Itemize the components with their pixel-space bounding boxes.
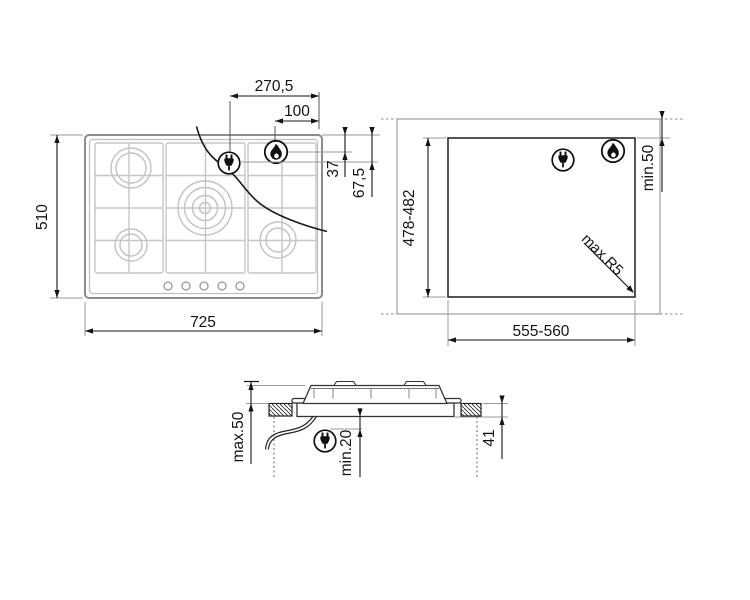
knob — [164, 282, 172, 290]
dim-label: 41 — [481, 429, 498, 446]
dim-plug-from-right: 270,5 — [230, 78, 319, 99]
dim-hob-width: 725 — [85, 314, 322, 334]
burner-cap-right — [404, 382, 426, 386]
dim-burner-from-right: 100 — [275, 103, 319, 124]
burner-cap-left — [334, 382, 356, 386]
dim-label: 37 — [325, 160, 342, 177]
dim-label: 100 — [284, 103, 310, 120]
dim-label: 67,5 — [351, 168, 368, 198]
knob — [200, 282, 208, 290]
plug-icon — [552, 149, 574, 171]
dim-label: 478-482 — [401, 190, 418, 247]
dim-depth-below-worktop: 41 — [481, 396, 505, 460]
cutout-rect — [448, 138, 635, 297]
dim-cutout-depth: 478-482 — [401, 138, 431, 297]
dim-label: max.50 — [230, 411, 247, 462]
installation-diagram-canvas: 270,5 100 37 67,5 510 725 — [0, 0, 750, 600]
dim-label: 555-560 — [513, 323, 570, 340]
knob — [236, 282, 244, 290]
plug-icon — [218, 152, 240, 174]
dim-rear-clearance: min.50 — [640, 111, 665, 192]
dim-label: 510 — [34, 204, 51, 230]
plug-icon — [314, 430, 336, 452]
hob-body-tub — [297, 403, 454, 417]
gas-flame-icon — [265, 141, 287, 163]
dim-label: min.20 — [338, 429, 355, 476]
dim-label: 270,5 — [255, 78, 294, 95]
plan-view: 270,5 100 37 67,5 510 725 — [34, 78, 380, 336]
knob — [182, 282, 190, 290]
dim-hob-depth: 510 — [34, 135, 60, 298]
dim-clearance-below: min.20 — [338, 408, 363, 477]
dim-label: 725 — [190, 314, 216, 331]
installation-diagram: 270,5 100 37 67,5 510 725 — [0, 0, 750, 600]
dim-max-above: max.50 — [230, 382, 259, 465]
dim-plug-from-top: 67,5 — [351, 127, 375, 198]
dim-label: min.50 — [640, 144, 657, 191]
gas-flame-icon — [602, 140, 624, 162]
side-view: max.50 min.20 41 — [230, 382, 508, 478]
dim-cutout-width: 555-560 — [448, 323, 635, 343]
knob — [218, 282, 226, 290]
worktop-section-left — [269, 404, 292, 417]
cutout-view: 478-482 555-560 min.50 max.R5 — [381, 111, 684, 346]
worktop-section-right — [461, 404, 481, 417]
power-cable — [266, 417, 317, 450]
